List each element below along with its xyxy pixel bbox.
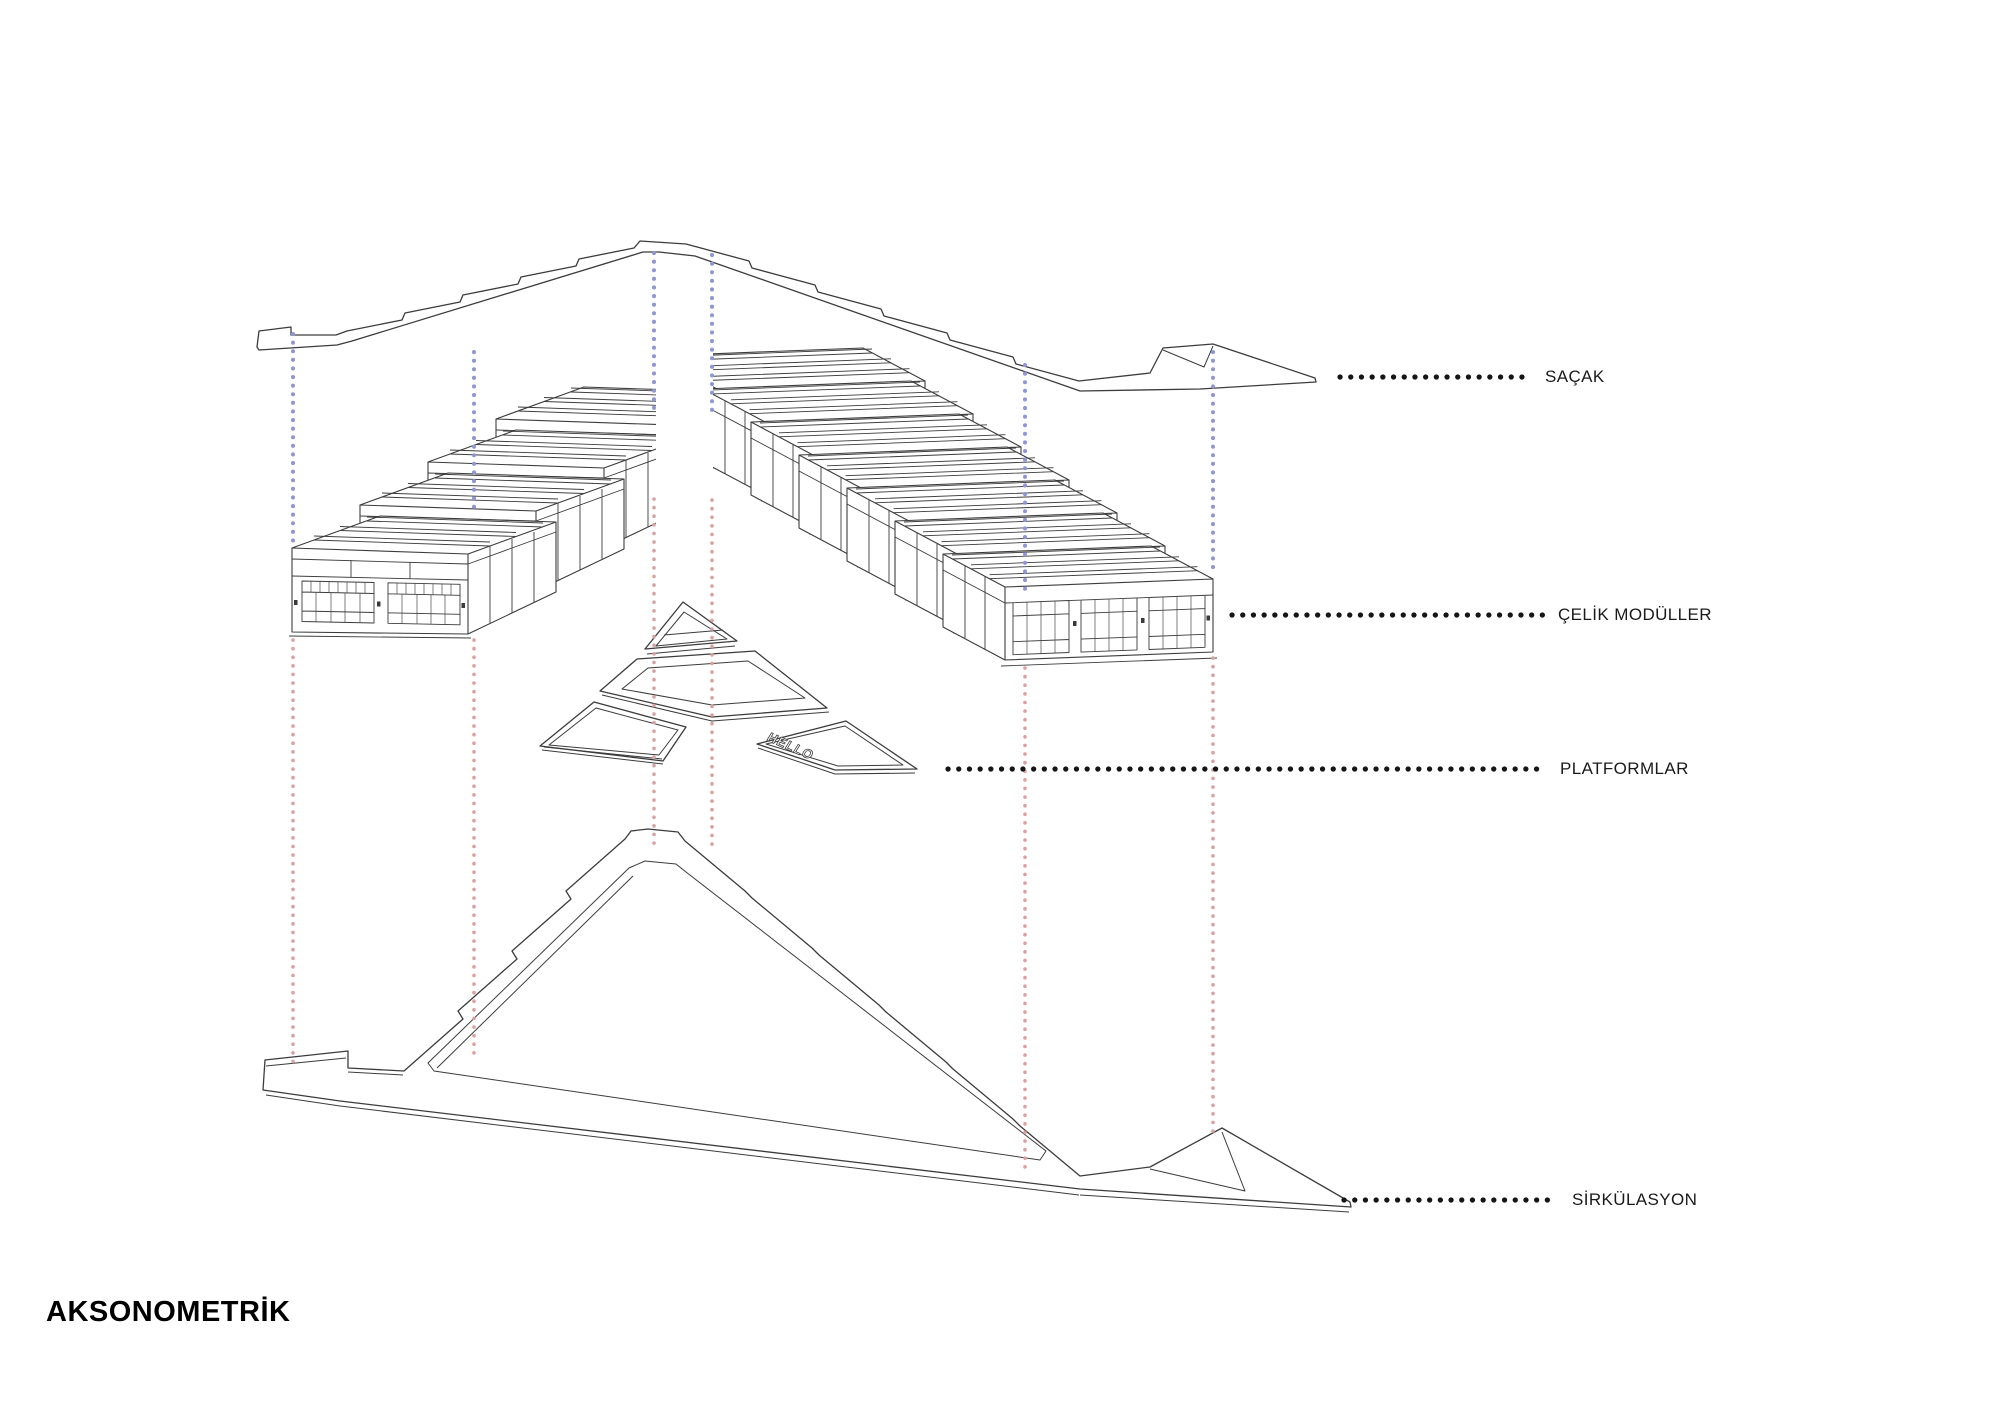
circulation-layer: [263, 829, 1351, 1212]
module-left-1: [289, 516, 556, 638]
platform-triangle: [645, 602, 737, 654]
platform-left-quad: [540, 702, 686, 764]
legend-label-platformlar-text: PLATFORMLAR: [1560, 759, 1689, 778]
legend-label-sacak-text: SAÇAK: [1545, 367, 1605, 386]
platforms-layer: HELLO: [540, 602, 917, 774]
legend-label-sacak: SAÇAK: [1545, 367, 1605, 387]
modules-right-row: [655, 348, 1217, 666]
legend-label-celik: ÇELİK MODÜLLER: [1558, 605, 1712, 625]
legend-label-sirkulasyon: SİRKÜLASYON: [1572, 1190, 1697, 1210]
platform-ring: [600, 651, 829, 721]
legend-label-sirkulasyon-text: SİRKÜLASYON: [1572, 1190, 1697, 1209]
page-title: AKSONOMETRİK: [46, 1296, 290, 1329]
modules-left-row: [289, 387, 760, 638]
axonometric-drawing: HELLO: [0, 0, 2000, 1414]
platform-right-quad: HELLO: [757, 721, 917, 774]
legend-label-platformlar: PLATFORMLAR: [1560, 759, 1689, 779]
axonometric-diagram-page: HELLO SAÇAK ÇELİK MODÜLLER PLATFORMLAR: [0, 0, 2000, 1414]
circulation-outline: [263, 829, 1351, 1207]
module-right-1: [943, 546, 1217, 666]
legend-label-celik-text: ÇELİK MODÜLLER: [1558, 605, 1712, 624]
page-title-text: AKSONOMETRİK: [46, 1296, 290, 1328]
